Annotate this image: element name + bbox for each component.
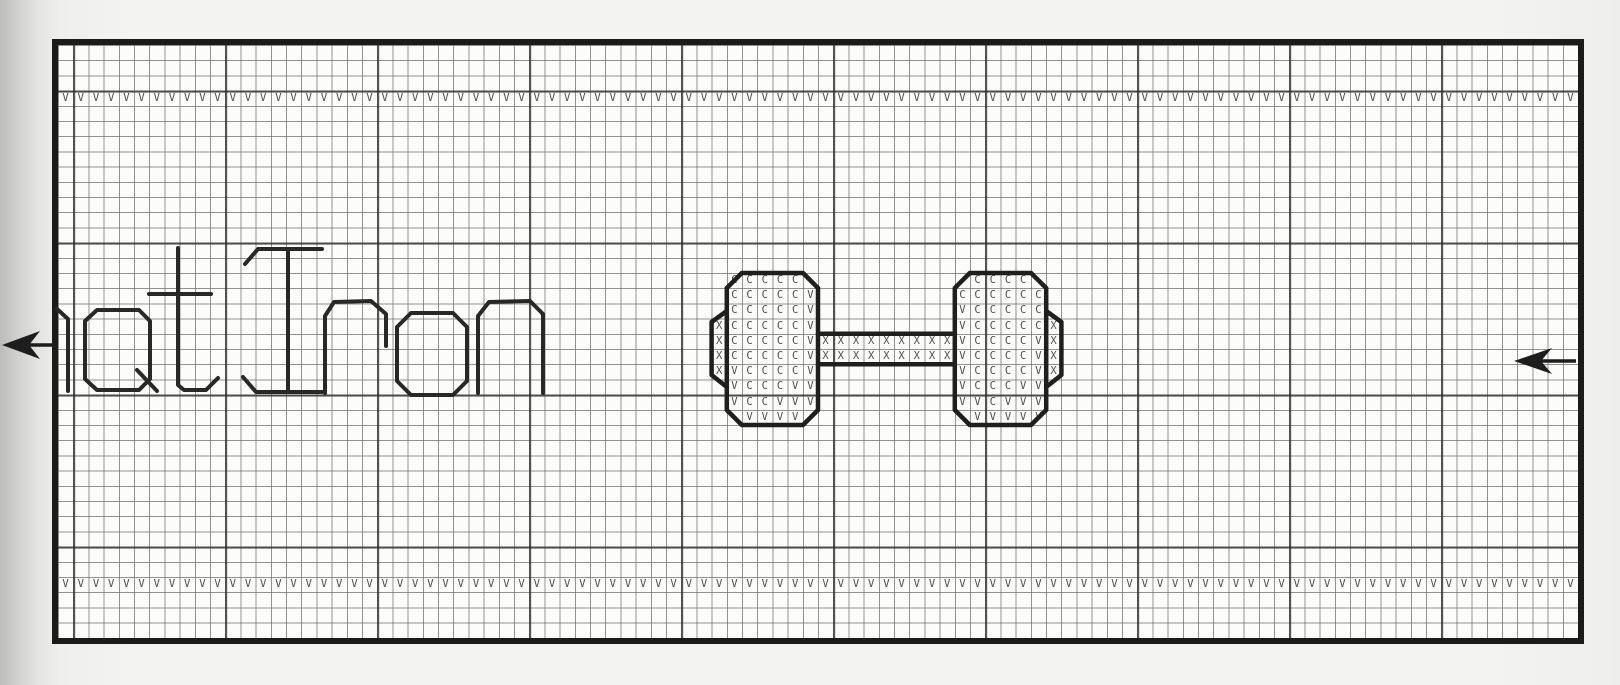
letter-I <box>243 249 322 392</box>
letter-n <box>478 301 543 393</box>
ink-overlay <box>0 0 1620 685</box>
letter-r <box>325 301 386 393</box>
letter-o <box>397 313 467 395</box>
left-center-marker-arrow-icon <box>2 331 58 359</box>
letter-partial-stroke <box>57 309 68 391</box>
letter-a <box>85 310 157 391</box>
right-center-marker-arrow-icon <box>1514 348 1576 374</box>
left-plate-lug-outline <box>712 311 727 387</box>
left-plate-outline <box>727 273 818 425</box>
dumbbell-outline <box>712 273 1062 425</box>
letter-t <box>149 248 218 390</box>
right-plate-outline <box>955 273 1046 425</box>
lettering-at-iron <box>57 248 543 395</box>
right-plate-lug-outline <box>1046 311 1061 387</box>
scanned-pattern-page: VVVVVVVVVVVVVVVVVVVVVVVVVVVVVVVVVVVVVVVV… <box>0 0 1620 685</box>
